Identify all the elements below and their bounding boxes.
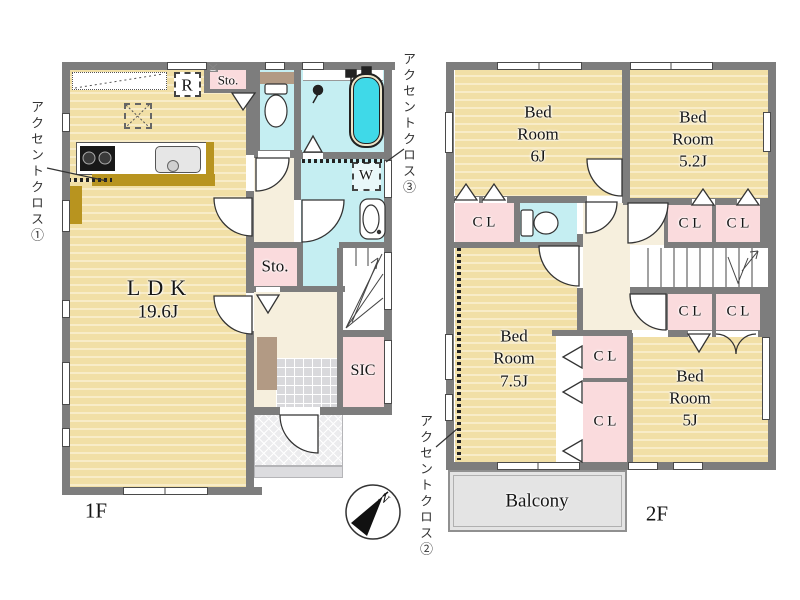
toilet-shelf: [260, 72, 294, 84]
window: [123, 487, 208, 495]
wall: [254, 62, 260, 152]
door-opening: [688, 331, 712, 337]
window: [62, 362, 70, 405]
room-toilet-2f: [520, 203, 577, 242]
hall-2f: [583, 203, 630, 333]
ceiling-hatch-box: [124, 103, 152, 129]
wall: [712, 205, 716, 245]
kitchen-sink-icon: [155, 146, 201, 173]
accent-wall-1-dots: [68, 178, 112, 182]
floor2-label: 2F: [646, 504, 668, 525]
wall: [514, 203, 520, 245]
window: [445, 394, 453, 421]
compass-north-label: N: [376, 489, 394, 508]
stairs-2f-bg: [630, 248, 768, 287]
accent-wall-2-dots: [457, 248, 461, 460]
hall-1f-top: [254, 158, 294, 242]
door-opening: [246, 155, 254, 191]
door-opening: [716, 331, 758, 337]
porch-step: [254, 466, 343, 478]
window: [265, 62, 285, 70]
bedroom5j-line2: Room: [669, 390, 711, 407]
window: [673, 462, 703, 470]
storage-top-label: Sto.: [218, 74, 239, 87]
hall-2f-vestibule: [630, 294, 668, 330]
closet-label: C L: [679, 217, 702, 232]
wall: [446, 462, 776, 470]
window: [497, 462, 580, 470]
door-opening: [737, 199, 760, 205]
bedroom52j-size: 5.2J: [679, 153, 707, 170]
bedroom75j-line1: Bed: [500, 328, 527, 345]
window: [445, 334, 453, 380]
door-opening: [246, 293, 254, 331]
door-opening: [258, 151, 290, 158]
closet-label: C L: [594, 350, 617, 365]
bedroom5j-line1: Bed: [676, 368, 703, 385]
bedroom52j-line2: Room: [672, 131, 714, 148]
sic-label: SIC: [351, 363, 376, 379]
bedroom75j-size: 7.5J: [500, 373, 528, 390]
door-opening: [455, 197, 479, 203]
window: [445, 112, 453, 153]
wall: [62, 62, 395, 70]
wall: [577, 287, 583, 336]
accent-wall-3-dots: [302, 159, 382, 163]
window: [62, 113, 70, 132]
storage-mid-label: Sto.: [262, 258, 289, 275]
counter-wall-panel: [70, 186, 82, 224]
door-opening: [577, 203, 583, 234]
bedroom75j-line2: Room: [493, 350, 535, 367]
room-washroom-corridor2: [303, 248, 337, 286]
floor-plan: N LDK 19.6J Sto. Sto. SIC R W 1F 2F Balc…: [0, 0, 800, 600]
closet-door-strip-75j: [556, 336, 583, 462]
wall: [583, 378, 627, 382]
stairs-1f-bg: [343, 248, 384, 330]
window: [497, 62, 582, 70]
wall: [760, 205, 768, 245]
accent-cross-3-label: アクセントクロス③: [402, 52, 415, 196]
door-opening: [577, 247, 583, 288]
ldk-label: LDK: [127, 277, 193, 299]
compass-circle: [346, 485, 400, 539]
wall: [712, 293, 716, 333]
window: [62, 200, 70, 232]
closet-label: C L: [594, 415, 617, 430]
bedroom6j-size: 6J: [530, 148, 545, 165]
wall: [552, 330, 632, 336]
cupboard: [72, 72, 167, 90]
door-opening: [483, 197, 507, 203]
wall: [204, 89, 248, 93]
wall: [664, 205, 668, 245]
entrance-tile: [276, 358, 337, 407]
window: [762, 337, 770, 420]
hall-2f-door-zone: [630, 203, 668, 245]
wall: [294, 62, 301, 200]
ldk-size: 19.6J: [138, 303, 179, 322]
bedroom52j-line1: Bed: [679, 109, 706, 126]
stove-icon: [80, 146, 115, 171]
accent-cross-2-label: アクセントクロス②: [419, 414, 432, 558]
window: [62, 428, 70, 447]
fridge-label: R: [181, 77, 192, 94]
door-opening: [303, 153, 323, 159]
accent-cross-1-label: アクセントクロス①: [30, 100, 43, 244]
wall: [254, 242, 303, 248]
wall: [337, 330, 390, 337]
door-opening: [294, 200, 301, 242]
window: [628, 462, 658, 470]
window: [302, 62, 324, 70]
closet-label: C L: [727, 217, 750, 232]
wall: [448, 242, 583, 248]
window: [62, 300, 70, 318]
entrance-porch: [254, 414, 343, 466]
floor1-label: 1F: [85, 501, 107, 522]
window: [630, 62, 713, 70]
bathtub-water: [353, 77, 380, 144]
window: [763, 112, 771, 152]
compass: N: [346, 485, 400, 539]
shoe-cabinet: [257, 337, 277, 390]
door-opening: [692, 199, 715, 205]
window: [384, 160, 392, 198]
bedroom5j-size: 5J: [682, 412, 697, 429]
window: [167, 62, 207, 70]
wall: [664, 293, 668, 333]
wall: [446, 62, 776, 70]
bedroom6j-line1: Bed: [524, 104, 551, 121]
bedroom6j-line2: Room: [517, 126, 559, 143]
door-opening: [280, 407, 320, 415]
wall: [627, 333, 633, 462]
closet-label: C L: [679, 305, 702, 320]
door-opening: [587, 196, 622, 203]
compass-needle: [351, 496, 383, 536]
door-opening: [256, 287, 280, 292]
wall: [630, 287, 768, 294]
closet-label: C L: [473, 216, 496, 231]
wall: [760, 293, 768, 333]
window: [384, 252, 392, 310]
wall: [664, 242, 768, 248]
wall: [622, 62, 630, 203]
wall: [246, 62, 254, 495]
balcony-label: Balcony: [505, 492, 568, 511]
closet-label: C L: [727, 305, 750, 320]
counter-end-panel: [206, 142, 214, 175]
washer-label: W: [359, 169, 373, 184]
door-opening: [633, 330, 668, 337]
window: [384, 340, 392, 404]
